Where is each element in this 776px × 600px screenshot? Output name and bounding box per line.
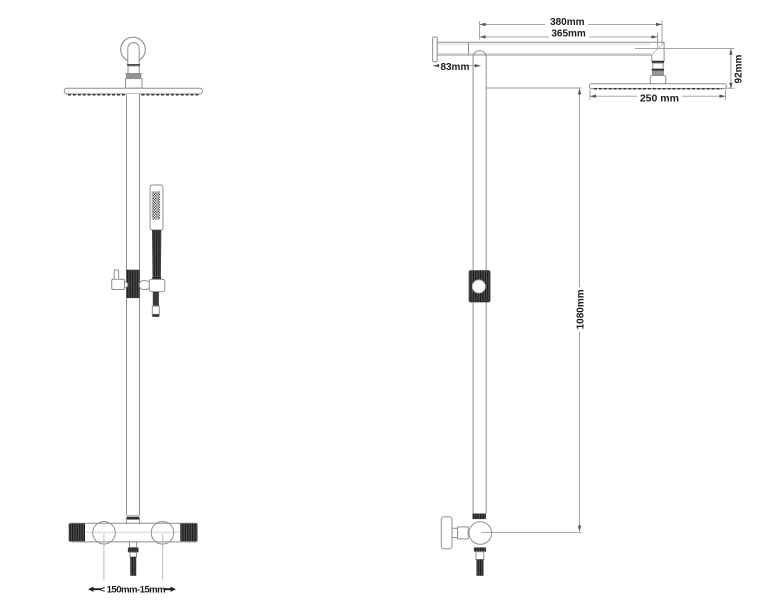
svg-text:1080mm: 1080mm	[575, 289, 586, 329]
svg-text:365mm: 365mm	[551, 29, 586, 40]
svg-text:92mm: 92mm	[734, 54, 745, 83]
svg-text:< 150mm-15mm: < 150mm-15mm	[99, 585, 165, 596]
svg-text:83mm: 83mm	[440, 62, 469, 73]
svg-text:250 mm: 250 mm	[640, 92, 679, 104]
svg-text:380mm: 380mm	[550, 17, 585, 28]
